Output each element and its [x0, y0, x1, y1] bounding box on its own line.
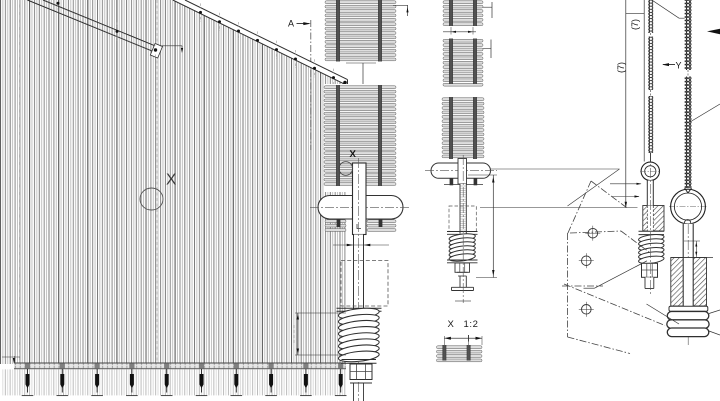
svg-text:X: X	[448, 319, 455, 330]
svg-text:(7): (7)	[616, 62, 626, 73]
svg-text:X: X	[166, 172, 177, 189]
svg-text:(7): (7)	[630, 19, 640, 30]
svg-text:Y: Y	[676, 61, 682, 71]
svg-text:X: X	[350, 149, 357, 160]
svg-text:A: A	[288, 18, 294, 28]
svg-text:1:2: 1:2	[464, 319, 479, 330]
